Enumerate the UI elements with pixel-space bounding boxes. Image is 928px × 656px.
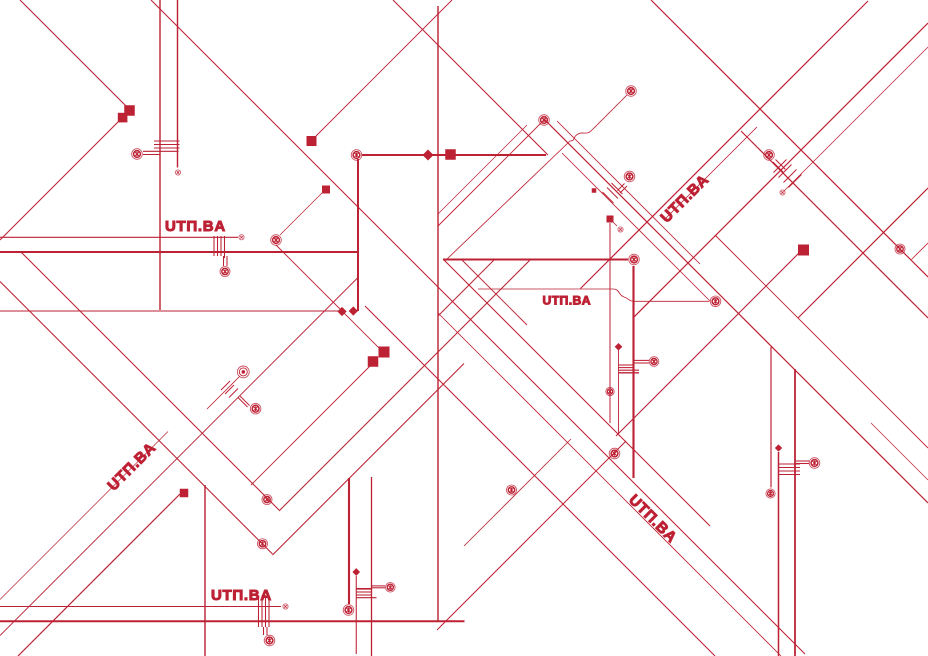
svg-text:UTΠ.BA: UTΠ.BA bbox=[543, 294, 591, 308]
svg-text:UTΠ.BA: UTΠ.BA bbox=[211, 587, 272, 604]
svg-text:UTΠ.BA: UTΠ.BA bbox=[104, 439, 159, 494]
svg-text:UTΠ.BA: UTΠ.BA bbox=[625, 491, 680, 546]
svg-text:UTΠ.BA: UTΠ.BA bbox=[165, 218, 226, 235]
svg-text:UTΠ.BA: UTΠ.BA bbox=[657, 171, 712, 226]
